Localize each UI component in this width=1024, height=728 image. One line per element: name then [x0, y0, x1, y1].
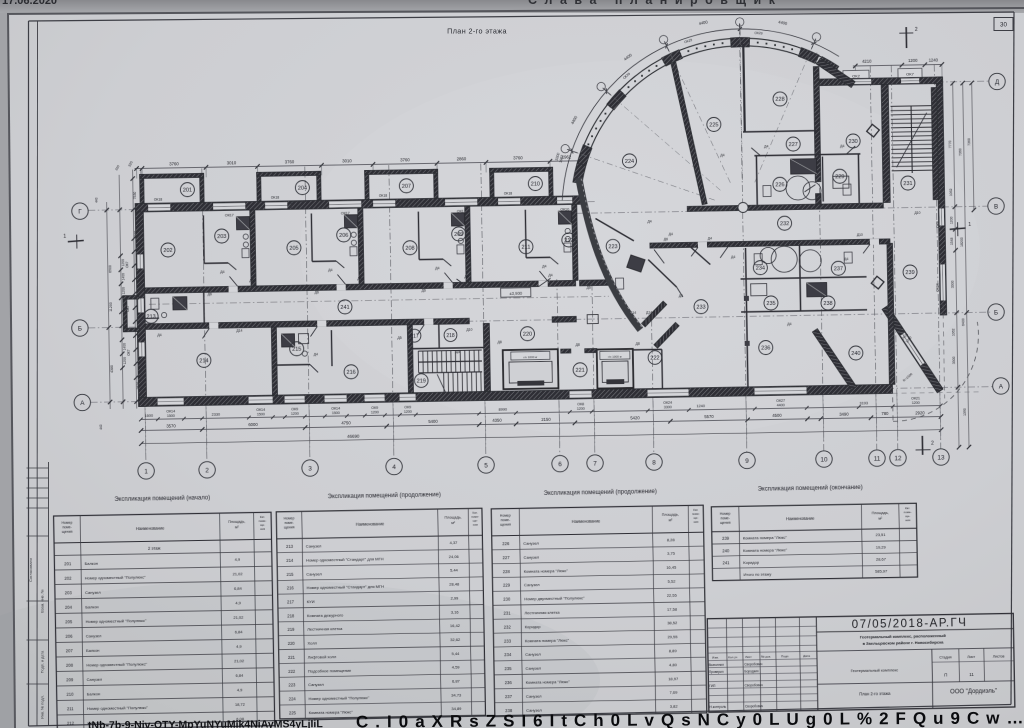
svg-text:Коридор: Коридор — [525, 624, 542, 629]
svg-text:5: 5 — [484, 462, 488, 469]
svg-text:ОК18: ОК18 — [271, 196, 280, 200]
svg-text:Д6: Д6 — [208, 292, 212, 296]
svg-text:234: 234 — [504, 652, 512, 657]
svg-text:3490: 3490 — [839, 412, 849, 417]
svg-text:230: 230 — [848, 139, 857, 145]
svg-text:Д6: Д6 — [315, 290, 319, 294]
svg-text:229: 229 — [503, 583, 511, 588]
svg-text:Номер одноместный "Полулюкс": Номер одноместный "Полулюкс" — [85, 574, 146, 580]
svg-text:229: 229 — [835, 174, 844, 180]
svg-text:Стадия: Стадия — [939, 655, 951, 659]
svg-text:2,99: 2,99 — [451, 595, 460, 600]
svg-text:Санузел: Санузел — [523, 541, 539, 546]
svg-text:Своробович: Своробович — [745, 683, 763, 687]
svg-text:Д5: Д5 — [397, 336, 401, 340]
svg-text:Санузел: Санузел — [524, 582, 540, 587]
svg-text:236: 236 — [505, 680, 513, 685]
svg-text:220: 220 — [288, 641, 296, 646]
svg-text:6,84: 6,84 — [235, 673, 244, 678]
svg-text:3760: 3760 — [169, 161, 179, 166]
svg-text:Своробович: Своробович — [745, 704, 763, 708]
svg-text:ния: ния — [260, 527, 265, 531]
svg-text:6900: 6900 — [108, 265, 112, 273]
svg-text:1240: 1240 — [929, 58, 939, 63]
svg-text:Наименование: Наименование — [136, 526, 165, 532]
svg-text:6000: 6000 — [248, 422, 258, 427]
svg-text:4350: 4350 — [492, 418, 502, 423]
svg-text:780: 780 — [881, 411, 889, 416]
svg-text:ОК14: ОК14 — [166, 409, 175, 413]
svg-text:1: 1 — [63, 234, 66, 240]
svg-text:Лифтовой холл: Лифтовой холл — [308, 654, 337, 660]
svg-text:3300: 3300 — [664, 405, 672, 409]
svg-text:ОК24: ОК24 — [936, 283, 940, 292]
svg-text:24,06: 24,06 — [449, 554, 460, 559]
svg-text:2150: 2150 — [541, 417, 551, 422]
svg-text:Номер одноместный "Полулюкс": Номер одноместный "Полулюкс" — [87, 705, 148, 711]
svg-text:1062: 1062 — [949, 188, 953, 196]
svg-text:235: 235 — [766, 301, 775, 307]
svg-text:ОК8: ОК8 — [577, 402, 584, 406]
svg-text:225: 225 — [709, 122, 718, 128]
svg-text:3300: 3300 — [951, 280, 955, 288]
svg-text:5,52: 5,52 — [668, 579, 677, 584]
svg-text:11: 11 — [969, 672, 974, 677]
svg-text:227: 227 — [788, 142, 797, 148]
svg-text:23,51: 23,51 — [875, 532, 886, 537]
svg-text:22,55: 22,55 — [667, 593, 678, 598]
svg-text:Балкон: Балкон — [85, 604, 99, 609]
svg-text:Д14: Д14 — [646, 311, 652, 315]
svg-text:План 2-го этажа: План 2-го этажа — [859, 691, 891, 697]
svg-text:2860: 2860 — [457, 156, 467, 161]
svg-text:5,44: 5,44 — [451, 651, 460, 656]
svg-text:Дата: Дата — [803, 654, 810, 658]
svg-text:209: 209 — [454, 232, 463, 238]
svg-text:13: 13 — [937, 454, 945, 461]
svg-text:7360: 7360 — [958, 148, 962, 156]
svg-text:7: 7 — [593, 460, 597, 467]
svg-text:Площадь,: Площадь, — [662, 513, 679, 517]
svg-text:Санузел: Санузел — [308, 682, 324, 687]
svg-text:1200: 1200 — [949, 216, 953, 224]
svg-text:Д10: Д10 — [857, 233, 863, 237]
svg-text:210: 210 — [531, 181, 540, 187]
svg-text:237: 237 — [505, 694, 513, 699]
svg-text:Инв. № подл.: Инв. № подл. — [41, 695, 45, 719]
svg-text:Д4: Д4 — [842, 241, 846, 245]
svg-text:8990: 8990 — [499, 408, 508, 412]
svg-text:Листов: Листов — [993, 654, 1005, 658]
svg-text:Комната номера "Люкс": Комната номера "Люкс" — [525, 637, 570, 643]
svg-text:232: 232 — [780, 221, 789, 227]
svg-text:223: 223 — [608, 244, 617, 250]
svg-text:ОК21: ОК21 — [911, 396, 920, 400]
svg-text:1200: 1200 — [577, 407, 585, 411]
svg-text:217: 217 — [287, 599, 295, 604]
svg-text:Н.контроль: Н.контроль — [709, 705, 726, 709]
svg-text:3760: 3760 — [285, 159, 295, 164]
svg-text:228: 228 — [775, 97, 784, 103]
svg-text:18,72: 18,72 — [235, 702, 246, 707]
svg-text:Д4: Д4 — [435, 266, 439, 270]
svg-text:231: 231 — [504, 611, 512, 616]
svg-text:213: 213 — [146, 314, 155, 320]
svg-text:8,28: 8,28 — [667, 537, 676, 542]
svg-text:226: 226 — [502, 541, 510, 546]
svg-text:Комната номера "Люкс": Комната номера "Люкс" — [743, 547, 788, 553]
svg-text:231: 231 — [903, 181, 912, 187]
svg-text:29,55: 29,55 — [667, 634, 678, 639]
svg-text:щения: щения — [720, 521, 731, 525]
svg-text:Д4: Д4 — [840, 144, 844, 148]
svg-text:9: 9 — [745, 458, 749, 465]
svg-text:1500: 1500 — [167, 414, 175, 418]
svg-text:Д4: Д4 — [647, 220, 651, 224]
svg-text:Д4: Д4 — [357, 277, 361, 281]
svg-text:Д4: Д4 — [720, 153, 724, 157]
svg-text:215: 215 — [286, 572, 294, 577]
svg-text:206: 206 — [65, 634, 73, 639]
svg-text:Лист: Лист — [745, 655, 752, 659]
svg-text:233: 233 — [504, 638, 512, 643]
svg-text:237: 237 — [834, 266, 843, 272]
svg-text:6,84: 6,84 — [234, 586, 243, 591]
svg-text:Санузел: Санузел — [85, 590, 101, 595]
svg-text:Лестничная клетка: Лестничная клетка — [307, 626, 343, 632]
svg-text:4,9: 4,9 — [235, 600, 241, 605]
svg-text:1200: 1200 — [291, 412, 299, 416]
svg-text:Д4: Д4 — [548, 273, 552, 277]
svg-text:202: 202 — [163, 248, 172, 254]
svg-text:10: 10 — [820, 456, 828, 463]
svg-text:4,9: 4,9 — [236, 644, 242, 649]
svg-text:1: 1 — [968, 222, 971, 228]
svg-text:208: 208 — [66, 663, 74, 668]
svg-text:1200: 1200 — [371, 411, 379, 415]
svg-text:38,52: 38,52 — [667, 620, 678, 625]
svg-text:230: 230 — [503, 597, 511, 602]
svg-text:Комната дежурного: Комната дежурного — [307, 612, 344, 618]
svg-text:Д4: Д4 — [542, 264, 546, 268]
svg-text:Коридор: Коридор — [743, 560, 760, 565]
svg-text:4,9: 4,9 — [237, 687, 243, 692]
svg-text:C.I0aXRsZSI6ItCh0LvQsNCy0LUg0L: C.I0aXRsZSI6ItCh0LvQsNCy0LUg0L%2FQu9Cw… — [356, 708, 1024, 728]
svg-text:ООО "Дордиэль": ООО "Дордиэль" — [950, 689, 997, 696]
svg-text:Балкон: Балкон — [84, 561, 98, 566]
svg-text:46690: 46690 — [347, 433, 360, 438]
svg-text:11200: 11200 — [109, 302, 113, 312]
svg-text:Санузел: Санузел — [306, 571, 322, 576]
svg-text:11: 11 — [874, 455, 881, 462]
svg-text:585,97: 585,97 — [875, 569, 888, 574]
svg-text:17,58: 17,58 — [667, 606, 678, 611]
svg-text:209: 209 — [66, 677, 74, 682]
svg-text:ОК7: ОК7 — [125, 261, 129, 268]
svg-text:3010: 3010 — [227, 160, 237, 165]
svg-text:Санузел: Санузел — [524, 554, 540, 559]
svg-text:tNb-7b-9-Njv-QTY-MpYuNYuMik4Ni: tNb-7b-9-Njv-QTY-MpYuNYuMik4NiAyMS4yLjIi… — [88, 718, 323, 728]
svg-text:3760: 3760 — [513, 155, 523, 160]
svg-text:21,02: 21,02 — [233, 615, 244, 620]
svg-text:Д4: Д4 — [669, 232, 673, 236]
svg-text:ОК2: ОК2 — [852, 73, 861, 78]
svg-text:Взам. инв. №: Взам. инв. № — [41, 589, 45, 613]
svg-text:Согласовано: Согласовано — [28, 557, 33, 582]
svg-text:Комната номера "Люкс": Комната номера "Люкс" — [743, 535, 788, 541]
svg-text:ОК27: ОК27 — [776, 399, 785, 403]
svg-text:203: 203 — [217, 234, 226, 240]
svg-text:2: 2 — [931, 441, 934, 447]
svg-text:217: 217 — [410, 333, 419, 339]
svg-text:Д10: Д10 — [466, 328, 472, 332]
svg-text:2330: 2330 — [212, 413, 221, 417]
svg-text:ОК9: ОК9 — [404, 405, 411, 409]
svg-text:1400: 1400 — [122, 343, 126, 351]
svg-text:5420: 5420 — [630, 415, 640, 420]
svg-text:Подсобное помещение: Подсобное помещение — [308, 668, 352, 674]
svg-text:5400: 5400 — [428, 419, 438, 424]
svg-text:219: 219 — [417, 379, 426, 385]
svg-text:241: 241 — [722, 560, 730, 565]
svg-text:Д4: Д4 — [844, 257, 848, 261]
svg-text:ОК18: ОК18 — [504, 191, 513, 195]
svg-text:201: 201 — [183, 188, 192, 194]
svg-text:Б: Б — [994, 309, 998, 316]
svg-text:Проверил: Проверил — [709, 670, 724, 674]
svg-text:6400: 6400 — [961, 318, 965, 326]
svg-text:226: 226 — [775, 182, 784, 188]
svg-text:Номер двухместный "Полулюкс": Номер двухместный "Полулюкс" — [524, 595, 585, 601]
svg-text:1500: 1500 — [332, 411, 340, 415]
svg-text:440: 440 — [95, 197, 99, 203]
svg-text:8,89: 8,89 — [669, 648, 678, 653]
svg-text:202: 202 — [64, 576, 72, 581]
svg-text:Д8: Д8 — [636, 342, 640, 346]
svg-text:1062: 1062 — [951, 328, 955, 336]
svg-text:±3,900: ±3,900 — [509, 291, 523, 296]
svg-text:228: 228 — [503, 569, 511, 574]
svg-text:Д4: Д4 — [731, 255, 735, 259]
svg-text:1200: 1200 — [404, 410, 412, 414]
svg-text:4,80: 4,80 — [669, 662, 678, 667]
svg-text:Комната номера "Люкс": Комната номера "Люкс" — [526, 679, 571, 685]
svg-text:ОК7: ОК7 — [127, 349, 131, 356]
svg-text:17.06.2020: 17.06.2020 — [2, 0, 57, 7]
svg-text:7360: 7360 — [967, 138, 971, 146]
svg-text:План 2-го этажа: План 2-го этажа — [447, 27, 507, 36]
svg-text:ОК14: ОК14 — [256, 408, 265, 412]
svg-text:3760: 3760 — [400, 157, 410, 162]
svg-text:212: 212 — [564, 238, 573, 244]
svg-text:16,45: 16,45 — [666, 565, 677, 570]
svg-text:4: 4 — [392, 464, 396, 471]
svg-text:2920: 2920 — [915, 410, 925, 415]
svg-text:12: 12 — [894, 455, 902, 462]
svg-text:205: 205 — [65, 619, 73, 624]
svg-text:2: 2 — [915, 27, 918, 33]
svg-text:щения: щения — [500, 523, 511, 527]
svg-text:4,59: 4,59 — [452, 665, 461, 670]
svg-text:4400: 4400 — [777, 403, 785, 407]
svg-text:Д6: Д6 — [422, 288, 426, 292]
svg-text:30: 30 — [1000, 22, 1007, 29]
svg-text:211: 211 — [67, 706, 74, 711]
svg-text:№ док.: № док. — [761, 655, 771, 659]
svg-text:Д4: Д4 — [314, 352, 318, 356]
svg-text:Номер одноместный "Полулюкс": Номер одноместный "Полулюкс" — [86, 661, 147, 667]
svg-text:ОК7: ОК7 — [906, 71, 915, 76]
svg-text:Наименование: Наименование — [786, 516, 815, 522]
svg-text:Номер одноместный "Полулюкс": Номер одноместный "Полулюкс" — [308, 695, 369, 701]
svg-text:Санузел: Санузел — [525, 652, 541, 657]
svg-text:Балкон: Балкон — [87, 691, 101, 696]
svg-text:18,97: 18,97 — [668, 676, 679, 681]
svg-text:7530: 7530 — [133, 192, 137, 200]
svg-text:219: 219 — [287, 627, 295, 632]
svg-text:224: 224 — [289, 696, 297, 701]
svg-text:2: 2 — [205, 467, 209, 474]
svg-text:Комната номера "Люкс": Комната номера "Люкс" — [524, 568, 569, 574]
svg-text:ОК9: ОК9 — [291, 407, 298, 411]
svg-text:Д6: Д6 — [664, 237, 668, 241]
svg-text:213: 213 — [286, 544, 294, 549]
svg-text:2 этаж: 2 этаж — [148, 546, 161, 551]
svg-text:Д4: Д4 — [328, 268, 332, 272]
svg-text:3,75: 3,75 — [667, 551, 676, 556]
svg-text:238: 238 — [823, 301, 832, 307]
svg-text:4500: 4500 — [772, 413, 782, 418]
svg-text:ОК24: ОК24 — [663, 401, 672, 405]
svg-text:6: 6 — [558, 461, 562, 468]
svg-text:16,42: 16,42 — [450, 623, 461, 628]
svg-text:203: 203 — [65, 590, 73, 595]
svg-text:Наименование: Наименование — [356, 521, 385, 527]
svg-text:г/п 1000 кг: г/п 1000 кг — [523, 355, 537, 359]
svg-text:Подп. и дата: Подп. и дата — [41, 650, 45, 673]
svg-text:19,29: 19,29 — [876, 544, 887, 549]
svg-text:218: 218 — [287, 613, 295, 618]
svg-text:Д10: Д10 — [914, 211, 920, 215]
svg-text:6,87: 6,87 — [452, 678, 461, 683]
svg-text:4380: 4380 — [110, 365, 114, 373]
svg-text:Балкон: Балкон — [86, 648, 100, 653]
svg-text:216: 216 — [287, 586, 295, 591]
svg-text:Геотермальный комплекс: Геотермальный комплекс — [851, 667, 899, 673]
svg-text:ГИП: ГИП — [709, 684, 716, 688]
svg-text:211: 211 — [521, 245, 530, 251]
svg-text:Кол.уч: Кол.уч — [728, 655, 738, 659]
svg-text:Санузел: Санузел — [525, 666, 541, 671]
svg-text:5570: 5570 — [704, 414, 714, 419]
svg-text:3010: 3010 — [342, 158, 352, 163]
svg-text:227: 227 — [503, 555, 511, 560]
svg-text:Бородкин: Бородкин — [744, 669, 758, 673]
svg-text:ОК18: ОК18 — [154, 198, 163, 202]
svg-text:240: 240 — [851, 351, 860, 357]
svg-text:32,62: 32,62 — [450, 637, 461, 642]
svg-text:Своробович: Своробович — [744, 662, 762, 666]
svg-text:Б: Б — [78, 325, 82, 332]
svg-text:1390: 1390 — [963, 408, 967, 416]
svg-text:21,02: 21,02 — [234, 658, 245, 663]
svg-text:3,82: 3,82 — [670, 704, 679, 709]
svg-text:7,69: 7,69 — [670, 690, 679, 695]
svg-text:225: 225 — [289, 710, 297, 715]
svg-text:1548: 1548 — [950, 237, 954, 245]
svg-text:7770: 7770 — [948, 140, 952, 148]
svg-text:Санузел: Санузел — [86, 677, 102, 682]
svg-text:232: 232 — [504, 624, 512, 629]
svg-text:Площадь,: Площадь, — [872, 511, 889, 515]
svg-text:4,9: 4,9 — [235, 557, 241, 562]
svg-text:1240: 1240 — [697, 404, 706, 408]
svg-text:34,73: 34,73 — [451, 692, 462, 697]
svg-text:215: 215 — [292, 347, 301, 353]
svg-text:ОК29: ОК29 — [754, 31, 763, 36]
svg-text:221: 221 — [288, 655, 296, 660]
svg-text:1200: 1200 — [908, 58, 918, 63]
svg-text:1200: 1200 — [912, 401, 920, 405]
svg-text:г/п 1000 кг: г/п 1000 кг — [608, 354, 622, 358]
svg-text:28,48: 28,48 — [449, 582, 460, 587]
svg-text:ОК9: ОК9 — [371, 406, 378, 410]
svg-text:208: 208 — [405, 246, 414, 252]
svg-text:Подп.: Подп. — [781, 654, 789, 658]
svg-text:241: 241 — [340, 305, 349, 311]
svg-text:220: 220 — [523, 332, 532, 338]
svg-text:щения: щения — [284, 526, 295, 530]
svg-text:239: 239 — [722, 536, 730, 541]
svg-text:Санузел: Санузел — [526, 693, 542, 698]
svg-text:3: 3 — [308, 465, 312, 472]
svg-text:Выполнил: Выполнил — [709, 663, 724, 667]
svg-text:Д: Д — [995, 79, 1000, 86]
svg-text:5,44: 5,44 — [450, 568, 459, 573]
svg-text:234: 234 — [756, 266, 765, 272]
svg-text:Лист: Лист — [967, 655, 975, 659]
svg-text:4,37: 4,37 — [450, 540, 459, 545]
svg-text:ОК18: ОК18 — [379, 194, 388, 198]
svg-text:ния: ния — [905, 518, 910, 522]
svg-text:ния: ния — [473, 523, 478, 527]
svg-text:236: 236 — [761, 345, 770, 351]
svg-text:6,84: 6,84 — [235, 629, 244, 634]
svg-text:212: 212 — [67, 721, 75, 726]
svg-text:204: 204 — [65, 605, 73, 610]
svg-text:1200: 1200 — [121, 287, 125, 295]
svg-text:щения: щения — [62, 530, 73, 534]
svg-text:4210: 4210 — [862, 59, 872, 64]
svg-text:Д4: Д4 — [787, 322, 791, 326]
svg-text:216: 216 — [346, 370, 355, 376]
svg-text:Итого по этажу: Итого по этажу — [743, 572, 771, 577]
svg-text:Д4: Д4 — [249, 278, 253, 282]
svg-text:224: 224 — [625, 159, 634, 165]
svg-text:КУИ: КУИ — [307, 599, 315, 604]
svg-text:Д8: Д8 — [497, 340, 501, 344]
svg-text:18200: 18200 — [960, 237, 964, 247]
svg-text:233: 233 — [696, 305, 705, 311]
svg-text:206: 206 — [339, 233, 348, 239]
svg-text:207: 207 — [66, 648, 74, 653]
svg-text:Площадь,: Площадь, — [445, 516, 462, 520]
svg-text:В: В — [994, 203, 998, 210]
svg-text:214: 214 — [199, 358, 208, 364]
svg-text:ОК17: ОК17 — [225, 213, 234, 217]
svg-text:210: 210 — [66, 692, 74, 697]
svg-text:Санузел: Санузел — [86, 633, 102, 638]
